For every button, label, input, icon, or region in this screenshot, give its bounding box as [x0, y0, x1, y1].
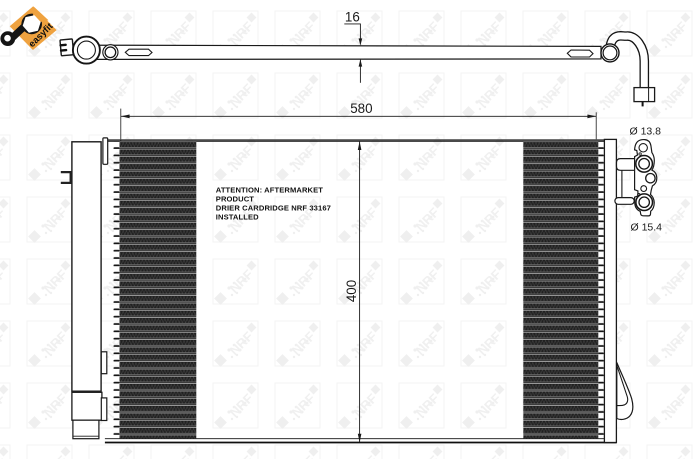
svg-text:INSTALLED: INSTALLED: [216, 213, 259, 222]
svg-text:Ø 15.4: Ø 15.4: [631, 221, 663, 233]
svg-text:16: 16: [345, 9, 360, 24]
svg-text:DRIER CARDRIDGE NRF 33167: DRIER CARDRIDGE NRF 33167: [216, 204, 331, 213]
svg-text:ATTENTION: AFTERMARKET: ATTENTION: AFTERMARKET: [216, 185, 323, 194]
svg-text:400: 400: [344, 280, 359, 302]
svg-text:PRODUCT: PRODUCT: [216, 195, 255, 204]
svg-text:580: 580: [350, 101, 372, 116]
svg-text:Ø 13.8: Ø 13.8: [630, 125, 662, 137]
